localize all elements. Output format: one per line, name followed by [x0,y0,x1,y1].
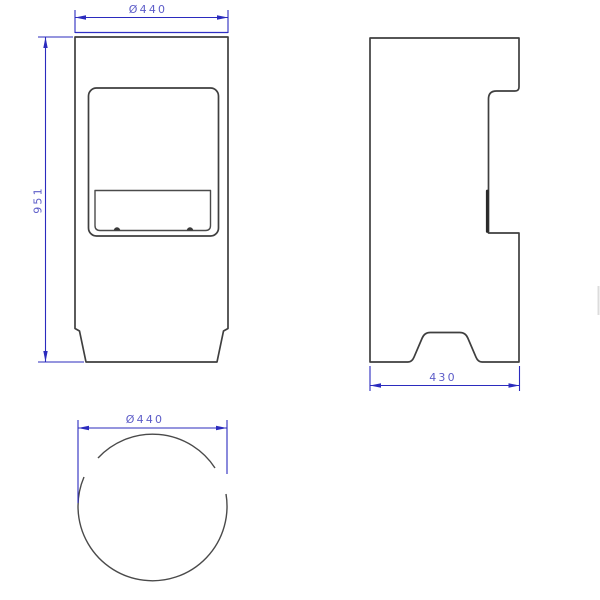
arrowhead-bottom [43,351,47,362]
dim-side-depth: 430 [370,366,520,391]
bottom-view [78,434,227,581]
arrowhead-left [78,426,89,430]
dim-text-front-height: 951 [32,186,45,214]
arrowhead-right [217,15,228,19]
front-shelf-panel [95,191,211,231]
arrowhead-right [509,383,520,387]
front-body-outline [75,37,228,362]
bottom-circle-main-arc [78,477,227,581]
dim-bottom-diameter: Ø440 [78,413,227,503]
side-body-outline [370,38,519,362]
hinge-dot-right [187,227,193,230]
cropped-edge-mark [598,286,600,315]
arrowhead-left [75,15,86,19]
dim-front-width: Ø440 [75,3,228,33]
front-view [75,33,228,363]
arrowhead-left [370,383,381,387]
dim-text-bottom-diameter: Ø440 [126,413,164,426]
hinge-dot-left [114,227,120,230]
dim-text-front-width: Ø440 [129,3,167,16]
dim-front-height: 951 [32,37,85,362]
side-view [370,38,519,362]
drawing-canvas: Ø440 951 430 Ø440 [0,0,600,600]
front-door-window [89,88,219,236]
arrowhead-top [43,37,47,48]
dim-text-side-depth: 430 [429,371,457,384]
arrowhead-right [216,426,227,430]
drawing-sheet: Ø440 951 430 Ø440 [0,0,600,600]
bottom-circle-top-arc [98,434,215,468]
